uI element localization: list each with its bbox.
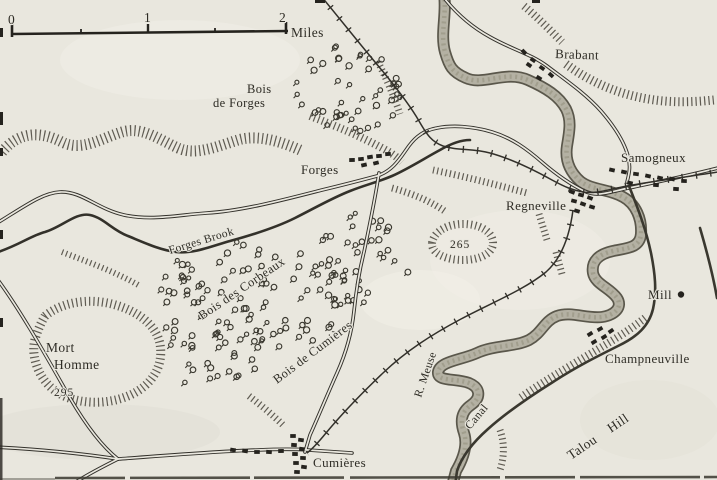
building-block: [653, 183, 659, 187]
scale-label-unit: Miles: [291, 25, 324, 40]
tree-symbol: [188, 267, 194, 273]
tree-symbol: [163, 299, 170, 306]
tree-symbol: [189, 333, 196, 340]
tree-symbol: [174, 258, 180, 264]
building-block: [361, 163, 367, 168]
tree-symbol: [282, 325, 288, 332]
tree-symbol: [377, 88, 383, 94]
tree-symbol: [326, 279, 332, 285]
tree-symbol: [207, 365, 214, 372]
hachure-hill-265-northwest: [392, 188, 446, 212]
building-block: [358, 157, 364, 161]
building-block: [591, 339, 598, 345]
building-block: [299, 447, 305, 452]
label-samogneux: Samogneux: [621, 150, 686, 165]
tree-symbol: [338, 100, 344, 106]
tree-symbol: [185, 362, 191, 368]
edge-mark: [532, 0, 540, 3]
historical-map-verdun-sector: 0 1 2 Miles Brabant Samogneux Regneville…: [0, 0, 717, 480]
building-block: [298, 438, 304, 442]
tree-symbol: [358, 239, 364, 246]
building-block: [290, 434, 296, 438]
edge-mark: [0, 148, 3, 156]
label-bois-de-forges-line2: de Forges: [213, 96, 265, 110]
tree-symbol: [391, 259, 397, 265]
building-block: [633, 172, 639, 176]
edge-mark: [0, 230, 3, 239]
paper-blotch: [580, 380, 717, 460]
building-block: [293, 461, 299, 465]
building-block: [254, 450, 260, 454]
tree-symbol: [227, 325, 233, 331]
tree-symbol: [215, 319, 221, 325]
tree-symbol: [297, 251, 303, 258]
paper-blotch: [360, 270, 480, 330]
hachure-canal-bank: [500, 430, 503, 470]
tree-symbol: [295, 264, 301, 271]
tree-symbol: [179, 261, 186, 268]
label-bois-de-forges-line1: Bois: [247, 82, 272, 96]
tree-symbol: [162, 274, 168, 280]
tree-symbol: [270, 284, 276, 291]
tree-symbol: [232, 307, 238, 313]
mill-dot: [678, 291, 684, 297]
tree-symbol: [240, 242, 246, 249]
tree-symbol: [317, 287, 323, 293]
tree-symbol: [373, 102, 380, 109]
tree-symbol: [263, 320, 269, 326]
building-block: [571, 198, 577, 203]
tree-symbol: [184, 288, 190, 295]
tree-symbol: [357, 128, 363, 134]
tree-symbol: [374, 122, 380, 128]
building-block: [526, 62, 533, 68]
building-block: [349, 158, 355, 162]
tree-symbol: [215, 345, 221, 351]
building-block: [609, 168, 615, 173]
tree-symbol: [214, 374, 220, 380]
building-block: [367, 155, 373, 160]
tree-symbol: [243, 332, 249, 338]
building-block: [601, 334, 608, 340]
tree-symbol: [318, 262, 324, 268]
tree-symbol: [384, 247, 390, 254]
tree-symbol: [311, 67, 318, 74]
hachure-brook-slope: [62, 252, 140, 286]
map-canvas: 0 1 2 Miles Brabant Samogneux Regneville…: [0, 0, 717, 480]
tree-symbol: [377, 218, 384, 225]
tree-symbol: [170, 336, 176, 342]
hachure-regneville-slope: [433, 170, 527, 193]
building-block: [621, 170, 627, 175]
tree-symbol: [277, 328, 283, 334]
building-block: [657, 176, 663, 181]
tree-symbol: [251, 366, 257, 373]
tree-symbol: [349, 224, 355, 230]
tree-symbol: [375, 237, 382, 244]
tree-symbol: [359, 97, 365, 103]
tree-symbol: [307, 57, 313, 64]
tree-symbol: [312, 110, 318, 117]
tree-symbol: [354, 250, 360, 257]
tree-symbol: [309, 271, 315, 277]
building-block: [645, 174, 651, 179]
edge-mark: [0, 112, 3, 125]
tree-symbol: [388, 97, 394, 104]
label-mort-homme-line2: Homme: [54, 357, 100, 372]
label-champneuville: Champneuville: [605, 351, 690, 366]
hachure-above-brabant: [524, 6, 562, 42]
tree-symbol: [389, 113, 395, 119]
edge-mark: [0, 318, 3, 327]
tree-symbol: [256, 247, 262, 253]
building-block: [373, 160, 379, 165]
tree-symbol: [240, 268, 246, 275]
building-block: [301, 465, 307, 469]
tree-symbol: [352, 126, 358, 132]
building-block: [589, 204, 595, 209]
building-block: [278, 449, 284, 453]
label-brabant: Brabant: [555, 46, 599, 63]
forges-buildings: [349, 152, 391, 168]
building-block: [627, 181, 633, 186]
building-block: [266, 450, 272, 454]
tree-symbol: [312, 264, 318, 270]
tree-symbol: [352, 211, 358, 217]
building-block: [587, 195, 594, 201]
tree-symbol: [334, 78, 340, 84]
label-cumieres: Cumières: [313, 455, 366, 470]
building-block: [574, 208, 580, 213]
tree-symbol: [335, 259, 341, 265]
tree-symbol: [248, 312, 254, 318]
edge-mark: [0, 398, 3, 480]
building-block: [294, 470, 300, 474]
label-mill: Mill: [648, 287, 672, 302]
tree-symbol: [325, 292, 332, 299]
building-block: [580, 201, 587, 206]
tree-symbol: [167, 343, 173, 349]
tree-symbol: [163, 325, 169, 331]
tree-symbol: [347, 215, 353, 221]
road-right-edge: [700, 228, 717, 298]
tree-symbol: [172, 319, 179, 326]
tree-symbol: [237, 337, 243, 343]
edge-mark: [315, 0, 325, 3]
tree-symbol: [304, 288, 310, 294]
tree-symbol: [170, 290, 177, 297]
label-elevation-265: 265: [450, 239, 470, 251]
tree-symbol: [224, 250, 231, 257]
tree-symbol: [204, 288, 210, 294]
tree-symbol: [326, 257, 333, 264]
tree-symbol: [319, 109, 325, 116]
tree-symbol: [181, 341, 187, 347]
tree-symbol: [270, 331, 276, 338]
tree-symbol: [296, 334, 302, 340]
tree-symbol: [222, 340, 228, 347]
tree-symbol: [290, 276, 296, 283]
tree-symbol: [254, 344, 260, 351]
building-block: [587, 331, 594, 337]
tree-symbol: [335, 56, 341, 62]
hachure-ridge-northwest: [2, 131, 300, 152]
scale-label-two: 2: [279, 10, 286, 25]
tree-symbol: [294, 92, 300, 98]
tree-symbol: [293, 80, 299, 86]
building-block: [608, 328, 615, 334]
tree-symbol: [251, 339, 257, 346]
paper-texture: [0, 20, 717, 460]
tree-symbol: [364, 125, 370, 131]
building-block: [597, 326, 604, 332]
tree-symbol: [319, 61, 326, 68]
building-block: [376, 154, 382, 158]
tree-symbol: [348, 117, 354, 123]
tree-symbol: [384, 228, 391, 235]
tree-symbol: [375, 225, 381, 231]
tree-symbol: [372, 94, 378, 100]
tree-symbol: [226, 369, 232, 376]
tree-symbol: [158, 287, 164, 293]
tree-symbol: [346, 63, 353, 70]
tree-symbol: [189, 367, 195, 374]
building-block: [292, 452, 298, 456]
cumieres-buildings: [230, 434, 307, 474]
tree-symbol: [346, 83, 352, 89]
building-block: [300, 456, 306, 460]
tree-symbol: [229, 268, 235, 274]
scale-label-one: 1: [144, 10, 151, 25]
edge-mark: [0, 28, 3, 37]
label-mort-homme-line1: Mort: [46, 340, 75, 355]
tree-symbol: [249, 357, 255, 364]
scale-label-zero: 0: [8, 12, 15, 27]
tree-symbol: [352, 243, 358, 249]
building-block: [291, 443, 297, 447]
champneuville-buildings: [587, 326, 615, 345]
building-block: [681, 179, 687, 183]
tree-symbol: [276, 344, 282, 350]
tree-symbol: [282, 318, 288, 325]
label-elevation-295: 295: [54, 387, 74, 399]
tree-symbol: [207, 376, 213, 382]
tree-symbol: [298, 102, 304, 108]
tree-symbol: [298, 296, 304, 302]
tree-symbol: [365, 66, 371, 73]
bottom-scan-band: [55, 477, 717, 478]
tree-symbol: [221, 277, 227, 283]
label-regneville: Regneville: [506, 198, 566, 213]
tree-symbol: [181, 380, 187, 386]
tree-symbol: [325, 263, 331, 270]
tree-symbol: [216, 259, 222, 266]
hachure-cumieres-slope: [249, 396, 284, 426]
tree-symbol: [355, 108, 361, 115]
tree-symbol: [368, 238, 374, 245]
tree-symbol: [171, 327, 178, 334]
tree-symbol: [204, 361, 210, 368]
tree-symbol: [344, 240, 350, 246]
label-forges: Forges: [301, 162, 339, 177]
building-block: [673, 187, 679, 191]
tree-symbol: [378, 57, 384, 64]
building-block: [385, 152, 391, 156]
tree-symbol: [319, 237, 325, 243]
